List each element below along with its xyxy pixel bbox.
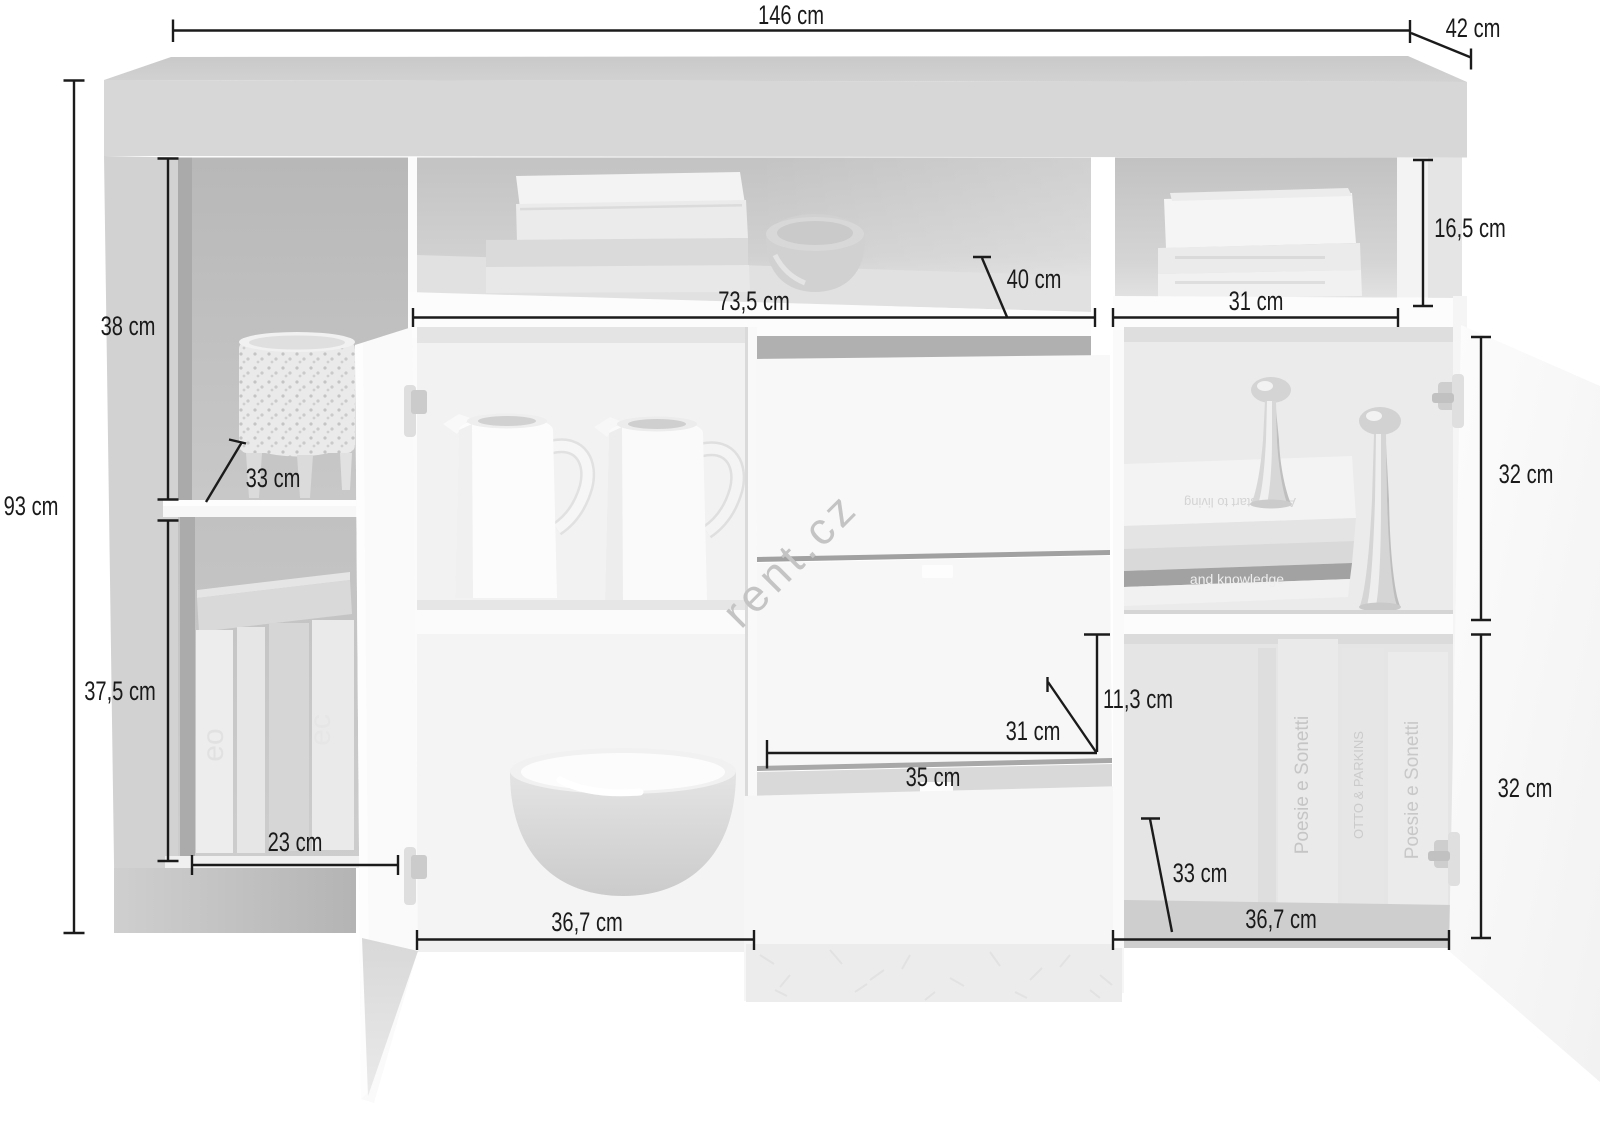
svg-text:Poesie e Sonetti: Poesie e Sonetti bbox=[1402, 721, 1423, 859]
svg-text:42 cm: 42 cm bbox=[1446, 13, 1501, 42]
svg-text:and knowledge: and knowledge bbox=[1190, 571, 1284, 587]
svg-text:93 cm: 93 cm bbox=[4, 491, 59, 520]
svg-text:31 cm: 31 cm bbox=[1229, 286, 1284, 315]
svg-text:33 cm: 33 cm bbox=[1173, 858, 1228, 887]
svg-text:ec: ec bbox=[304, 714, 337, 746]
svg-text:11,3 cm: 11,3 cm bbox=[1103, 684, 1173, 713]
svg-text:38 cm: 38 cm bbox=[101, 311, 156, 340]
svg-text:23 cm: 23 cm bbox=[268, 827, 323, 856]
svg-text:36,7 cm: 36,7 cm bbox=[1245, 904, 1317, 933]
svg-text:32 cm: 32 cm bbox=[1498, 773, 1553, 802]
svg-text:31 cm: 31 cm bbox=[1006, 716, 1061, 745]
svg-text:32 cm: 32 cm bbox=[1499, 459, 1554, 488]
svg-text:35 cm: 35 cm bbox=[906, 762, 961, 791]
svg-text:Poesie e Sonetti: Poesie e Sonetti bbox=[1292, 716, 1313, 854]
svg-text:40 cm: 40 cm bbox=[1007, 264, 1062, 293]
svg-text:36,7 cm: 36,7 cm bbox=[551, 907, 623, 936]
svg-text:OTTO & PARKINS: OTTO & PARKINS bbox=[1351, 731, 1366, 839]
svg-text:146 cm: 146 cm bbox=[758, 0, 824, 29]
svg-text:37,5 cm: 37,5 cm bbox=[84, 676, 156, 705]
svg-text:16,5 cm: 16,5 cm bbox=[1434, 213, 1506, 242]
svg-text:33 cm: 33 cm bbox=[246, 463, 301, 492]
svg-text:eo: eo bbox=[197, 728, 230, 761]
svg-text:73,5 cm: 73,5 cm bbox=[718, 286, 790, 315]
